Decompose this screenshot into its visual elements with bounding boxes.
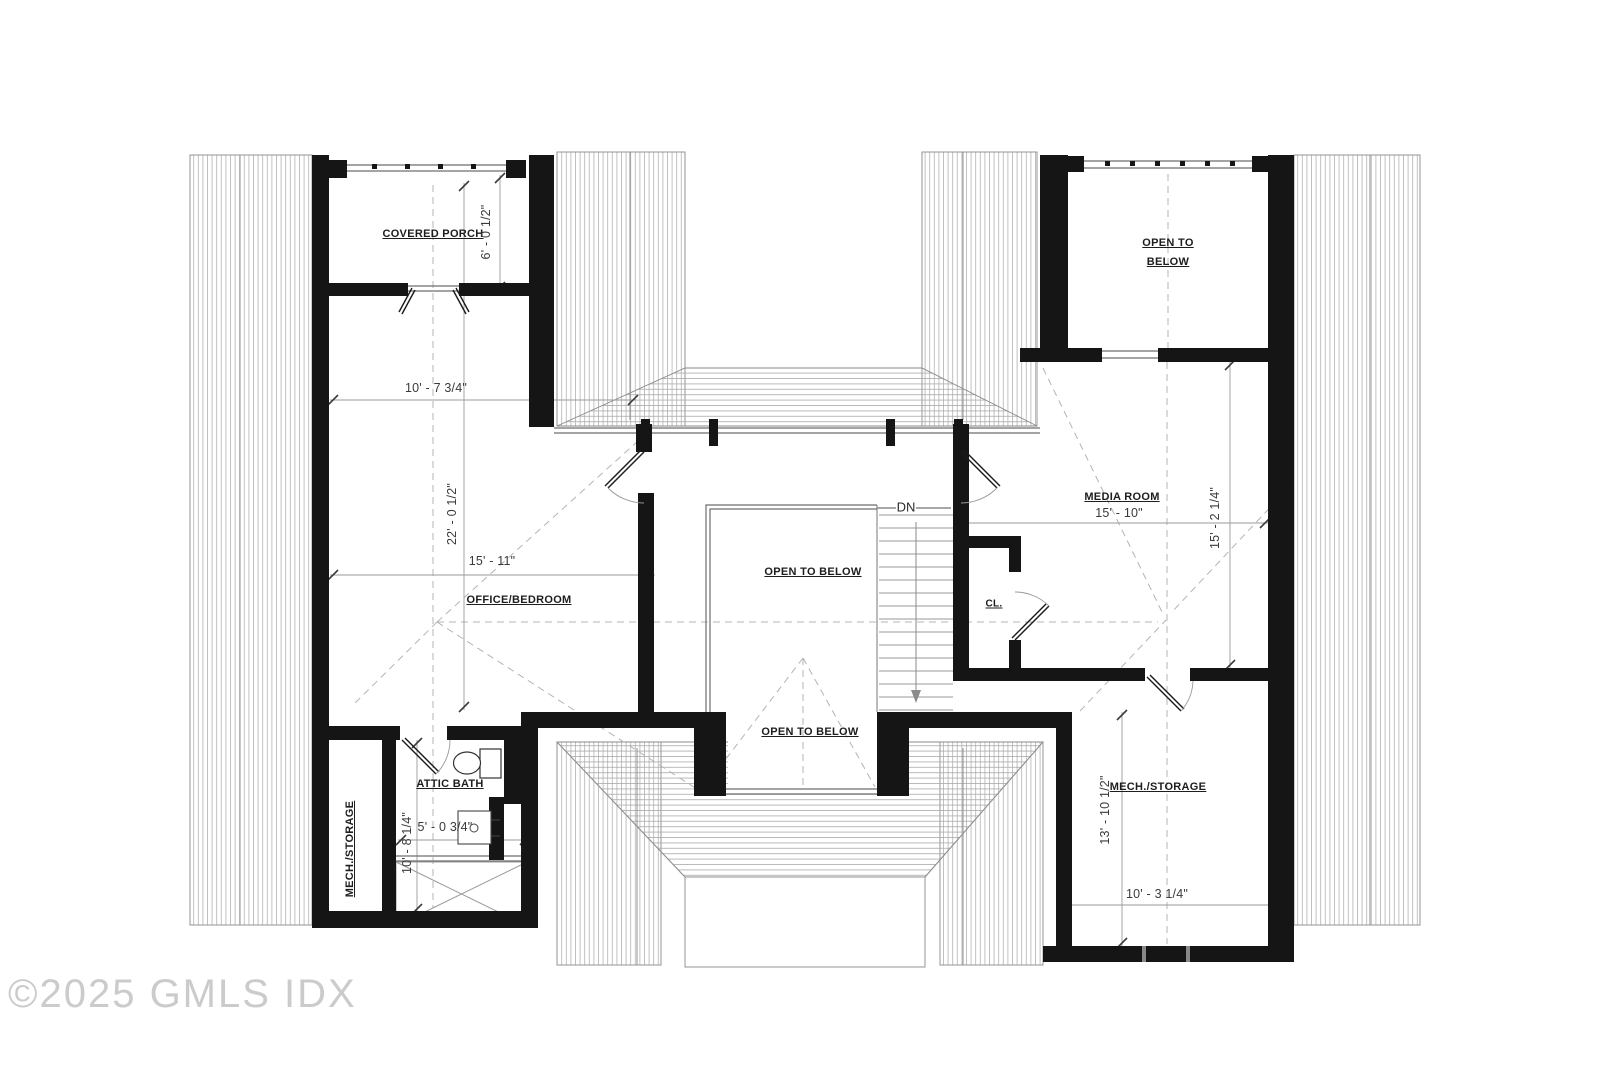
stair-down-label: DN [897, 500, 916, 515]
watermark: ©2025 GMLS IDX [8, 972, 357, 1017]
dim-office-length: 22' - 0 1/2" [445, 483, 459, 545]
room-label-media-room: MEDIA ROOM [1084, 491, 1159, 503]
dim-storage-length: 13' - 10 1/2" [1098, 775, 1112, 844]
dim-storage-width: 10' - 3 1/4" [1126, 887, 1188, 901]
room-label-office-bedroom: OFFICE/BEDROOM [466, 594, 571, 606]
dim-media-width: 15' - 10" [1095, 506, 1143, 520]
room-label-attic-bath: ATTIC BATH [416, 778, 483, 790]
dim-bath-width: 5' - 0 3/4" [418, 820, 473, 834]
floor-plan-page: COVERED PORCH 6' - 0 1/2" 10' - 7 3/4" 2… [0, 0, 1620, 1080]
room-label-open-to-below-bottom: OPEN TO BELOW [761, 726, 858, 738]
room-label-open-to-below-upper-2: BELOW [1147, 256, 1189, 268]
room-label-open-to-below-center: OPEN TO BELOW [764, 566, 861, 578]
room-label-covered-porch: COVERED PORCH [382, 228, 483, 240]
dim-media-depth: 15' - 2 1/4" [1208, 487, 1222, 549]
room-label-open-to-below-upper-1: OPEN TO [1142, 237, 1193, 249]
room-label-closet: CL. [985, 599, 1002, 610]
plan-labels: COVERED PORCH 6' - 0 1/2" 10' - 7 3/4" 2… [0, 0, 1620, 1080]
dim-bath-length: 10' - 8 1/4" [400, 812, 414, 874]
room-label-mech-storage-right: MECH./STORAGE [1110, 781, 1207, 793]
room-label-mech-storage-left: MECH./STORAGE [344, 801, 356, 898]
dim-office-width: 10' - 7 3/4" [405, 381, 467, 395]
dim-porch-depth: 6' - 0 1/2" [479, 205, 493, 260]
dim-office-width-inner: 15' - 11" [469, 554, 516, 568]
